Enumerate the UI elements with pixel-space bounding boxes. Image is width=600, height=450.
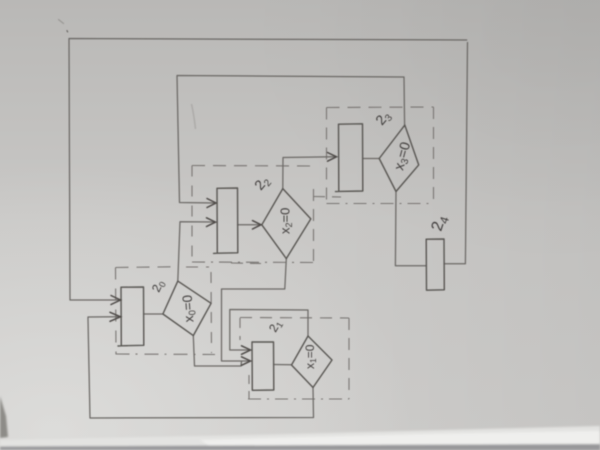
- svg-text:x2=0: x2=0: [278, 208, 295, 234]
- svg-text:x1=0: x1=0: [303, 344, 318, 369]
